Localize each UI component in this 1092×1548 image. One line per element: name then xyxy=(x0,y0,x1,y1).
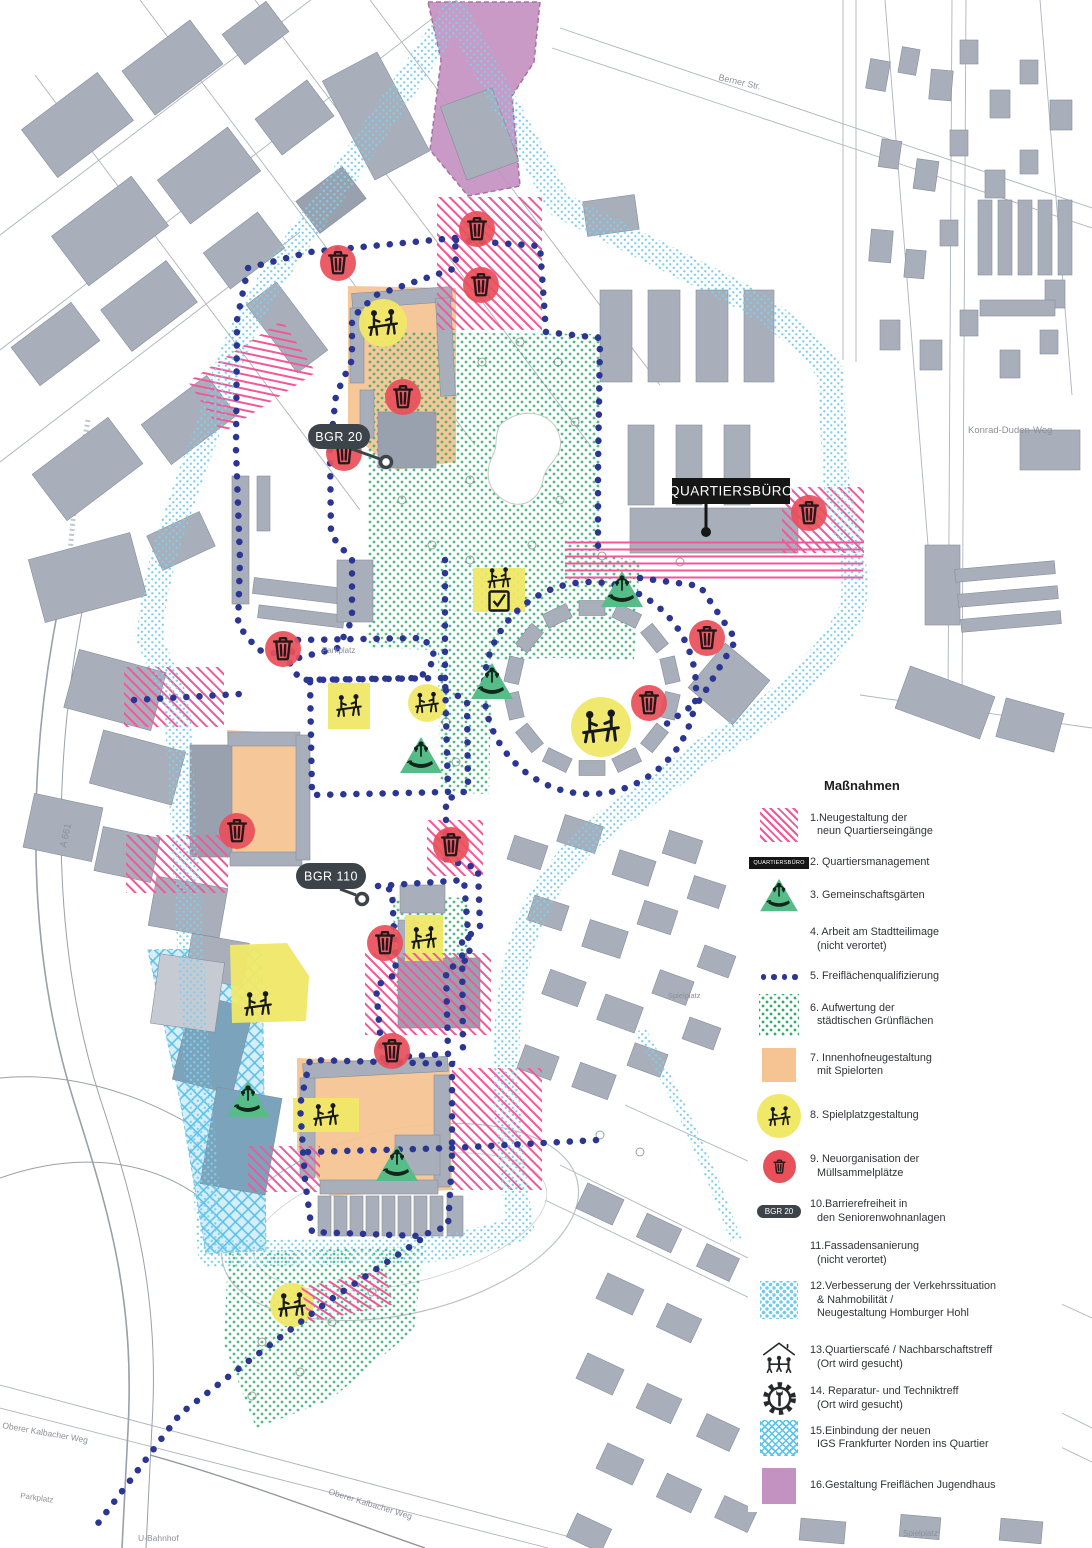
gear-wrench-icon xyxy=(748,1380,810,1417)
waste-point-marker xyxy=(463,267,499,303)
legend-item-text: 6. Aufwertung der xyxy=(810,1002,895,1014)
callout-ring xyxy=(357,894,368,905)
building xyxy=(382,1196,395,1236)
building xyxy=(22,72,134,177)
playground-area xyxy=(571,697,631,757)
building xyxy=(925,545,960,625)
community-garden-icon xyxy=(400,737,442,773)
waste-point-marker xyxy=(265,631,301,667)
building xyxy=(504,656,524,685)
building xyxy=(51,176,168,286)
building xyxy=(398,1196,411,1236)
building xyxy=(958,586,1059,608)
street-label: Oberer Kalbacher Weg xyxy=(2,1420,89,1445)
building xyxy=(255,80,334,155)
building xyxy=(660,656,680,685)
building xyxy=(157,127,260,224)
callout-label: BGR 110 xyxy=(304,870,358,884)
building xyxy=(366,1196,379,1236)
legend-item-text: städtischen Grünflächen xyxy=(810,1015,933,1029)
building xyxy=(895,666,995,739)
building xyxy=(799,1518,846,1544)
garden-triangle-icon xyxy=(748,878,810,914)
building xyxy=(542,969,587,1006)
building xyxy=(230,852,302,866)
building xyxy=(350,1196,363,1236)
green-space-zone xyxy=(224,1246,424,1428)
legend-item-text: den Seniorenwohnanlagen xyxy=(810,1212,945,1226)
building xyxy=(32,417,143,520)
building xyxy=(101,261,198,352)
building xyxy=(600,290,632,382)
legend-item-1: 1.Neugestaltung derneun Quartierseingäng… xyxy=(748,808,1062,842)
building xyxy=(960,310,978,336)
building xyxy=(257,476,270,531)
legend-item-3: 3. Gemeinschaftsgärten xyxy=(748,878,1062,914)
building xyxy=(656,1473,701,1513)
building xyxy=(648,290,680,382)
building xyxy=(1058,200,1072,275)
building xyxy=(961,611,1062,633)
callout-leader xyxy=(340,889,356,895)
building xyxy=(596,1273,644,1315)
callout-label: BGR 20 xyxy=(315,430,362,444)
legend-item-text: 14. Reparatur- und Techniktreff xyxy=(810,1385,958,1397)
building xyxy=(636,1383,682,1424)
waste-point-marker xyxy=(791,495,827,531)
legend-item-6: 6. Aufwertung derstädtischen Grünflächen xyxy=(748,994,1062,1036)
building xyxy=(960,40,978,64)
legend-item-11: 11.Fassadensanierung(nicht verortet) xyxy=(748,1240,1062,1267)
building xyxy=(913,159,939,192)
legend-item-2: QUARTIERSBÜRO2. Quartiersmanagement xyxy=(748,856,1062,870)
building xyxy=(682,1017,721,1050)
street-label: Spielplatz xyxy=(903,1529,938,1538)
building xyxy=(978,200,992,275)
building xyxy=(1040,330,1058,354)
building xyxy=(641,723,669,753)
legend-item-text: IGS Frankfurter Norden ins Quartier xyxy=(810,1438,989,1452)
building xyxy=(582,920,629,959)
building xyxy=(296,735,310,860)
building xyxy=(414,1196,427,1236)
waste-point-marker xyxy=(367,925,403,961)
bgr-pill-icon: BGR 20 xyxy=(757,1205,801,1218)
building xyxy=(579,761,605,776)
building xyxy=(687,875,726,908)
legend-item-8: 8. Spielplatzgestaltung xyxy=(748,1094,1062,1138)
legend-item-15: 15.Einbindung der neuenIGS Frankfurter N… xyxy=(748,1420,1062,1456)
purple-square-icon xyxy=(748,1468,810,1504)
building xyxy=(252,577,345,604)
legend-item-text: (Ort wird gesucht) xyxy=(810,1358,992,1372)
building xyxy=(576,1353,624,1395)
building xyxy=(652,970,694,1006)
street-label: Parkplatz xyxy=(322,646,355,655)
building xyxy=(579,601,605,616)
building xyxy=(999,1518,1043,1544)
cafe-house-icon xyxy=(748,1340,810,1375)
building xyxy=(980,300,1055,316)
legend-item-text: Neugestaltung Homburger Hohl xyxy=(810,1307,996,1321)
legend-item-16: 16.Gestaltung Freiflächen Jugendhaus xyxy=(748,1468,1062,1504)
street-label: U-Bahnhof xyxy=(138,1533,179,1543)
legend-item-text: 7. Innenhofneugestaltung xyxy=(810,1052,932,1064)
playground-area xyxy=(230,943,309,1023)
building xyxy=(258,605,345,628)
building xyxy=(576,1183,624,1225)
road-path xyxy=(0,1162,218,1212)
building xyxy=(612,850,656,886)
legend-item-text: (nicht verortet) xyxy=(810,940,939,954)
legend-panel: Maßnahmen 1.Neugestaltung derneun Quarti… xyxy=(748,768,1062,1512)
legend-item-10: BGR 2010.Barrierefreiheit inden Senioren… xyxy=(748,1198,1062,1225)
legend-item-14: 14. Reparatur- und Techniktreff(Ort wird… xyxy=(748,1380,1062,1417)
building xyxy=(596,1443,644,1485)
orange-square-icon xyxy=(748,1048,810,1082)
waste-point-marker xyxy=(374,1033,410,1069)
legend-item-text: 11.Fassadensanierung xyxy=(810,1240,919,1252)
waste-point-marker xyxy=(459,211,495,247)
ring-road-spur xyxy=(640,1030,736,1240)
building xyxy=(996,698,1064,752)
building xyxy=(1050,100,1072,130)
building xyxy=(1020,150,1038,174)
building xyxy=(955,561,1056,583)
building xyxy=(515,723,543,753)
waste-point-marker xyxy=(689,620,725,656)
building xyxy=(662,830,703,864)
legend-item-text: 10.Barrierefreiheit in xyxy=(810,1198,907,1210)
legend-title: Maßnahmen xyxy=(824,778,900,793)
building xyxy=(697,945,736,978)
street-label: Spielplatz xyxy=(668,991,701,1000)
building xyxy=(572,1062,617,1099)
building xyxy=(1038,200,1052,275)
building xyxy=(228,732,300,746)
cyan-dots-icon xyxy=(748,1281,810,1319)
legend-item-text: 2. Quartiersmanagement xyxy=(810,856,929,868)
green-dots-icon xyxy=(748,994,810,1036)
legend-item-text: mit Spielorten xyxy=(810,1065,932,1079)
bgr-pill-icon: BGR 20 xyxy=(748,1205,810,1218)
building xyxy=(866,58,891,91)
legend-item-4: 4. Arbeit am Stadtteilimage(nicht verort… xyxy=(748,926,1062,953)
legend-item-13: 13.Quartierscafé / Nachbarschaftstreff(O… xyxy=(748,1340,1062,1375)
legend-item-text: & Nahmobilität / xyxy=(810,1294,996,1308)
legend-item-text: 3. Gemeinschaftsgärten xyxy=(810,889,925,901)
legend-item-text: neun Quartierseingänge xyxy=(810,825,933,839)
legend-item-text: 8. Spielplatzgestaltung xyxy=(810,1109,919,1121)
building xyxy=(11,302,100,385)
blue-crosshatch-icon xyxy=(748,1420,810,1456)
legend-item-text: 15.Einbindung der neuen xyxy=(810,1425,931,1437)
playground-area xyxy=(328,683,370,729)
building xyxy=(880,320,900,350)
urban-planning-map-page: { "colors":{ "pink":"#f2579b","blue_dot"… xyxy=(0,0,1092,1548)
building xyxy=(122,20,223,115)
building xyxy=(929,69,954,101)
callout-dot xyxy=(701,527,711,537)
building xyxy=(920,340,942,370)
road-path xyxy=(150,1455,425,1548)
building xyxy=(400,885,445,913)
building xyxy=(985,170,1005,198)
trash-circle-icon xyxy=(748,1150,810,1183)
legend-item-text: (Ort wird gesucht) xyxy=(810,1399,958,1413)
building xyxy=(869,229,894,263)
building xyxy=(998,200,1012,275)
pink-hatch-icon xyxy=(748,808,810,842)
legend-item-12: 12.Verbesserung der Verkehrssituation& N… xyxy=(748,1280,1062,1321)
building xyxy=(904,249,926,279)
building xyxy=(641,623,669,653)
legend-item-text: (nicht verortet) xyxy=(810,1254,919,1268)
building xyxy=(1020,60,1038,84)
building xyxy=(1020,430,1080,470)
building xyxy=(566,1513,611,1548)
building xyxy=(542,748,572,773)
building xyxy=(696,290,728,382)
building xyxy=(898,47,920,76)
street-label: Parkplatz xyxy=(20,1491,54,1505)
building xyxy=(950,130,968,156)
legend-item-text: 4. Arbeit am Stadtteilimage xyxy=(810,926,939,938)
building xyxy=(940,220,958,246)
legend-item-9: 9. Neuorganisation derMüllsammelplätze xyxy=(748,1150,1062,1183)
legend-item-7: 7. Innenhofneugestaltungmit Spielorten xyxy=(748,1048,1062,1082)
street-label: Konrad-Duden-Weg xyxy=(968,425,1052,436)
waste-point-marker xyxy=(219,813,255,849)
building xyxy=(990,90,1010,118)
blue-dots-icon xyxy=(748,974,810,980)
legend-item-text: Müllsammelplätze xyxy=(810,1167,919,1181)
quarter-entry-zone xyxy=(365,953,491,1035)
legend-item-5: 5. Freiflächenqualifizierung xyxy=(748,970,1062,984)
building xyxy=(696,1414,739,1452)
building xyxy=(1000,350,1020,378)
waste-point-marker xyxy=(385,379,421,415)
callout-label: QUARTIERSBÜRO xyxy=(669,484,793,499)
tree xyxy=(636,1148,644,1156)
street-line xyxy=(560,28,1092,208)
building xyxy=(447,1196,463,1236)
building xyxy=(28,533,146,623)
callout-ring xyxy=(381,457,392,468)
legend-item-text: 1.Neugestaltung der xyxy=(810,812,907,824)
play-circle-icon xyxy=(748,1094,810,1138)
road-path xyxy=(0,1077,196,1128)
legend-item-text: 9. Neuorganisation der xyxy=(810,1153,919,1165)
quartiersbuero-pill-icon: QUARTIERSBÜRO xyxy=(749,857,808,869)
building xyxy=(507,835,548,870)
street-line xyxy=(0,1408,548,1548)
building xyxy=(637,900,678,935)
legend-item-text: 5. Freiflächenqualifizierung xyxy=(810,970,939,982)
waste-point-marker xyxy=(320,245,356,281)
quartiersbuero-pill-icon: QUARTIERSBÜRO xyxy=(748,857,810,869)
building xyxy=(222,1,289,64)
building xyxy=(597,994,644,1033)
building xyxy=(656,1303,701,1343)
legend-item-text: 13.Quartierscafé / Nachbarschaftstreff xyxy=(810,1344,992,1356)
playground-area xyxy=(408,684,446,722)
building xyxy=(878,139,902,170)
waste-point-marker xyxy=(433,827,469,863)
waste-point-marker xyxy=(631,685,667,721)
legend-item-text: 12.Verbesserung der Verkehrssituation xyxy=(810,1280,996,1292)
legend-item-text: 16.Gestaltung Freiflächen Jugendhaus xyxy=(810,1479,995,1491)
building xyxy=(320,1180,438,1194)
building xyxy=(1018,200,1032,275)
building xyxy=(628,425,654,505)
